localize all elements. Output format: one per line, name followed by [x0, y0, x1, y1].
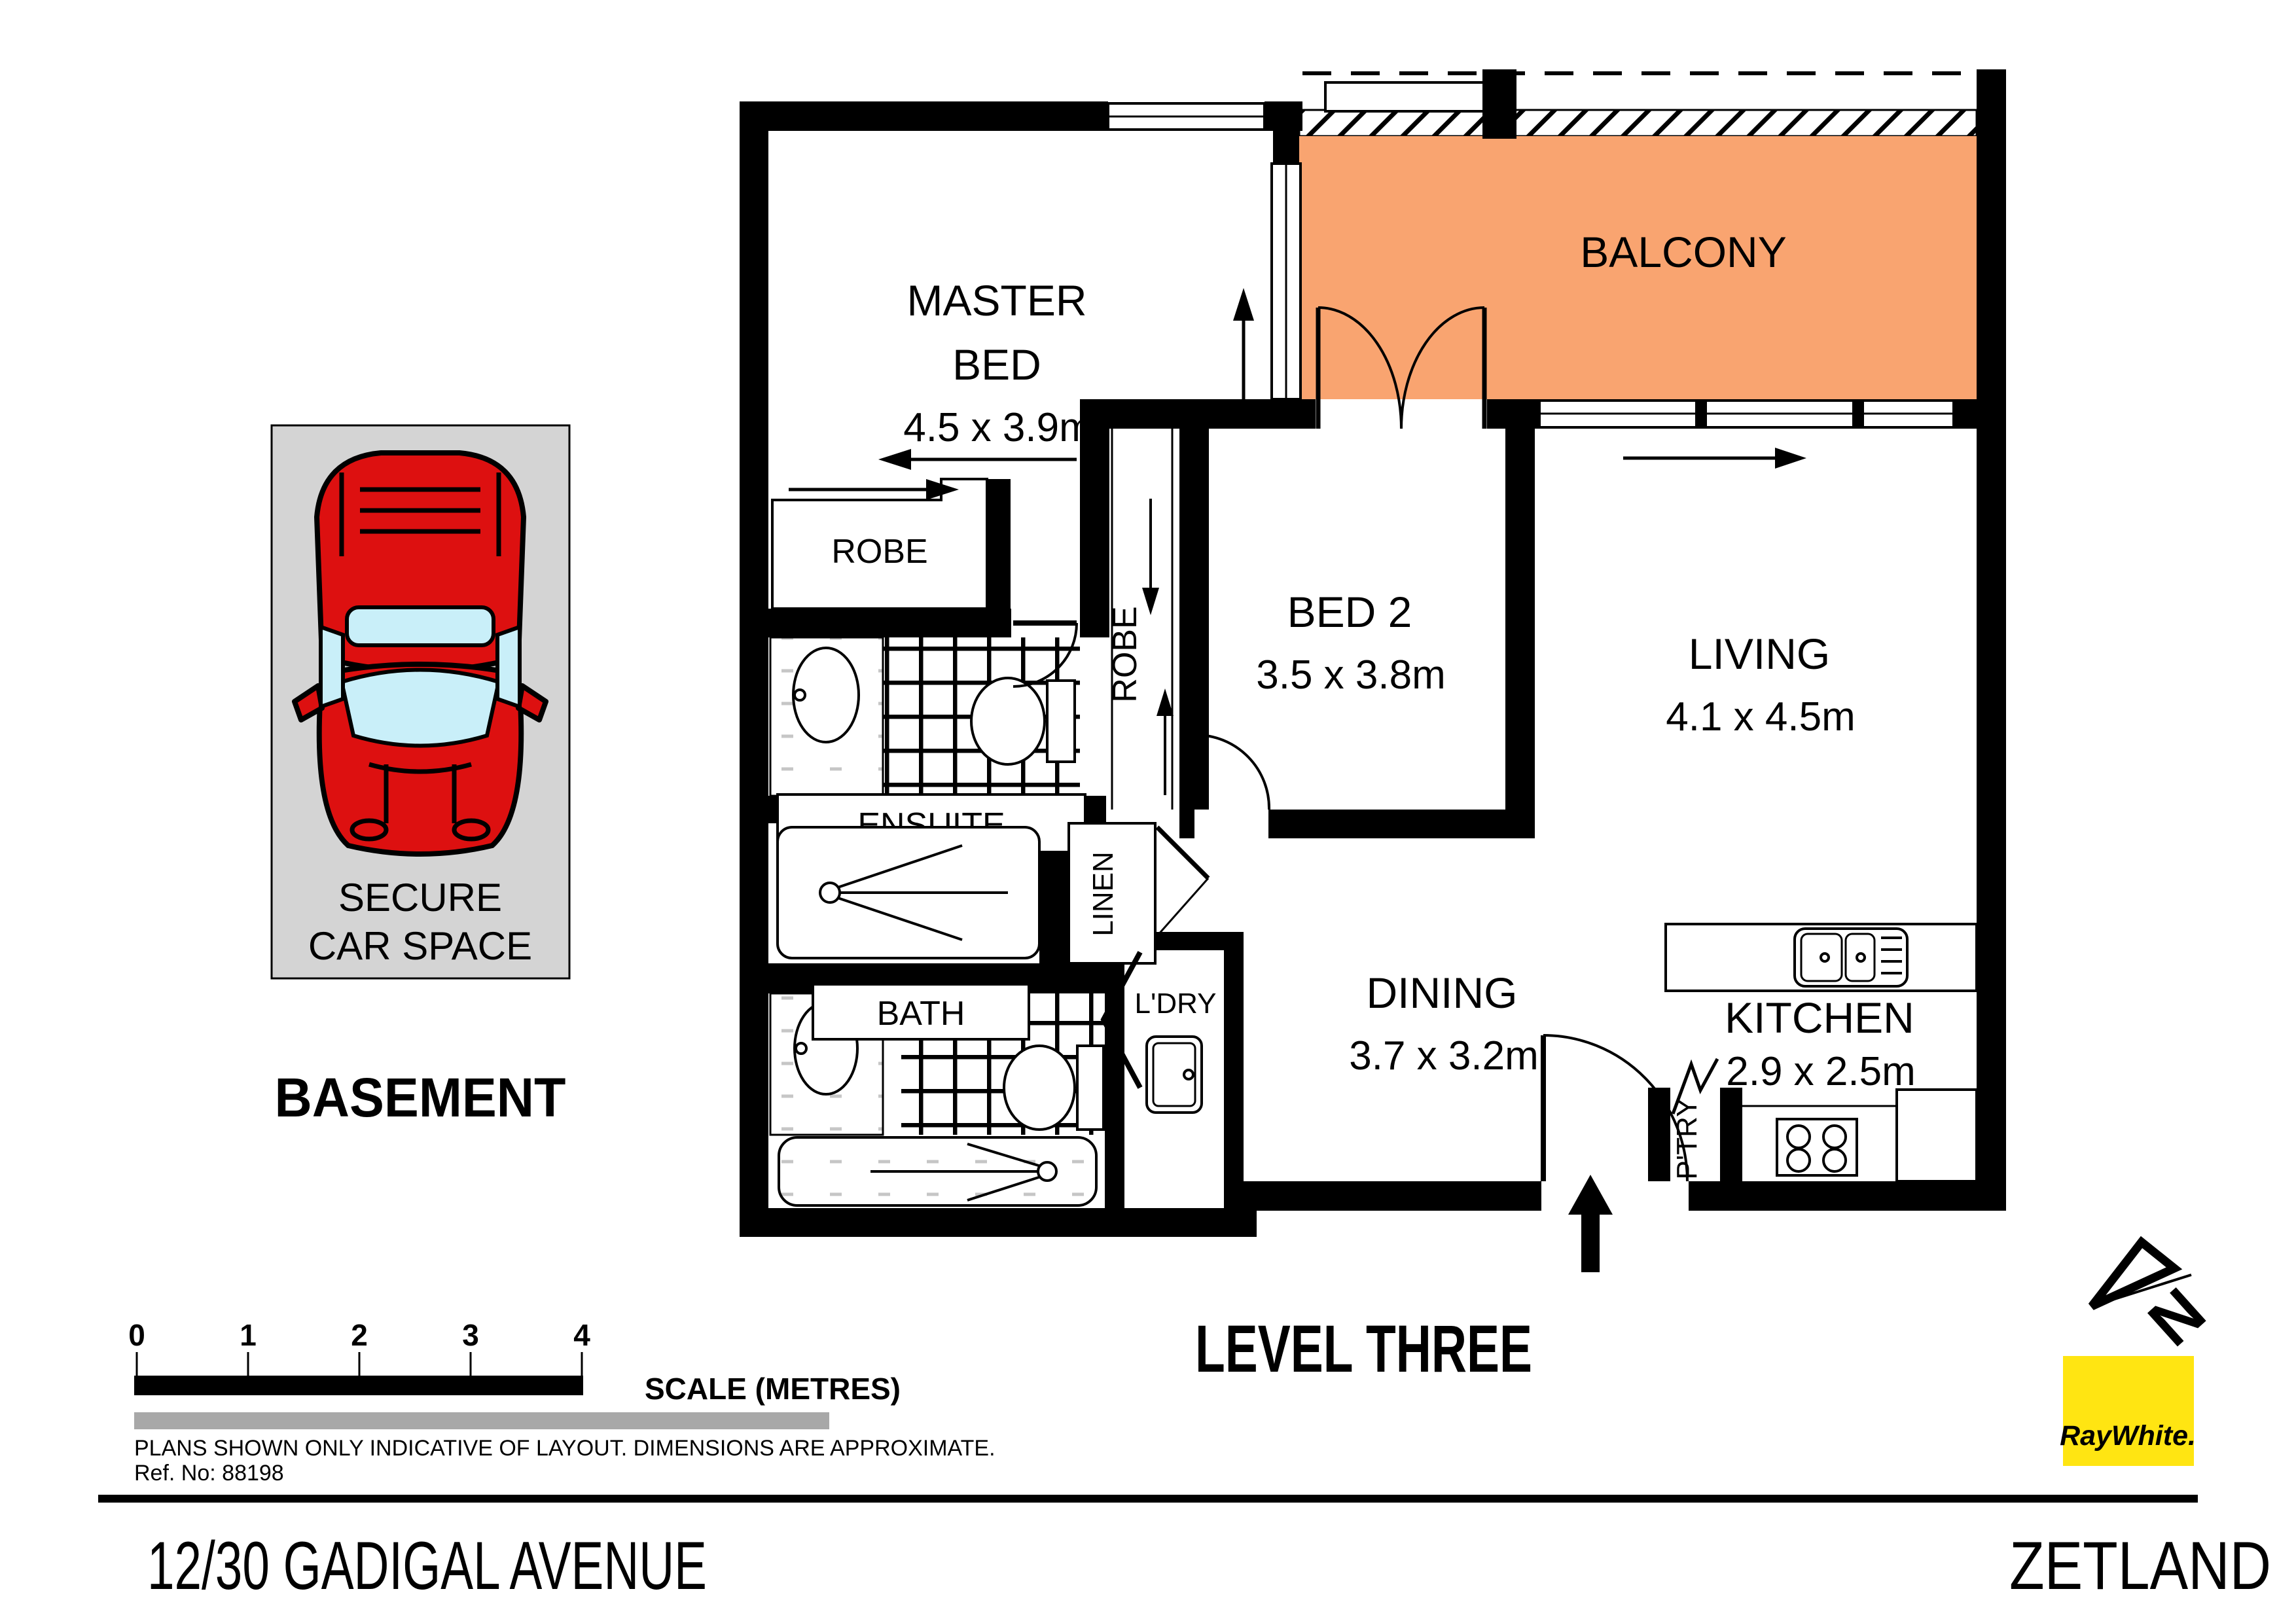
bath-label: BATH: [877, 995, 965, 1033]
laundry-east-wall: [1224, 932, 1244, 1211]
bed2-living-wall: [1505, 429, 1535, 838]
balcony-pillar: [1482, 69, 1516, 139]
carspace-label-2: CAR SPACE: [308, 924, 532, 968]
disclaimer-text: PLANS SHOWN ONLY INDICATIVE OF LAYOUT. D…: [134, 1436, 996, 1461]
master-dims: 4.5 x 3.9m: [903, 405, 1092, 450]
outer-wall-bottom-right: [1689, 1181, 2006, 1211]
living-dims: 4.1 x 4.5m: [1666, 694, 1855, 740]
car-window-left: [321, 627, 343, 707]
car-window-right: [497, 627, 520, 707]
bed2-south-wall-b: [1268, 810, 1535, 838]
bed2-dims: 3.5 x 3.8m: [1256, 652, 1445, 698]
balcony-sill-end: [1954, 399, 1977, 429]
pantry-wall-left: [1648, 1088, 1670, 1181]
ensuite-north-wall: [740, 609, 1011, 637]
master-balcony-divider: [1273, 101, 1299, 164]
laundry-label: L'DRY: [1135, 988, 1217, 1020]
kitchen-dims: 2.9 x 2.5m: [1726, 1049, 1915, 1094]
master-robe-label: ROBE: [831, 533, 927, 571]
bed2-south-wall-a: [1179, 810, 1194, 838]
bath-toilet: [1004, 1046, 1103, 1130]
balustrade-hatch: [1299, 110, 1977, 136]
car-illustration: [295, 453, 546, 854]
scale-label: SCALE (METRES): [645, 1372, 901, 1406]
address-text: 12/30 GADIGAL AVENUE: [147, 1528, 707, 1604]
scale-tick-0: 0: [128, 1318, 145, 1352]
scale-tick-1: 1: [240, 1318, 257, 1352]
bathroom: BATH: [770, 984, 1105, 1205]
carspace-label-1: SECURE: [338, 876, 502, 919]
outer-wall-bottom-left: [740, 1208, 1257, 1237]
floorplan-page: BALCONY: [0, 0, 2296, 1623]
master-top-window: [1108, 103, 1265, 130]
scale-tick-2: 2: [351, 1318, 368, 1352]
suburb-text: ZETLAND: [2009, 1528, 2271, 1604]
living-label: LIVING: [1689, 630, 1830, 678]
kitchen-sink: [1795, 929, 1907, 986]
bed2-robe-label: ROBE: [1106, 606, 1144, 702]
footer-rule: [98, 1495, 2198, 1503]
bed2-label: BED 2: [1287, 588, 1412, 636]
outer-wall-left: [740, 101, 768, 1237]
outer-wall-top-left: [740, 101, 1108, 131]
ensuite-toilet: [971, 678, 1075, 764]
shower: [778, 827, 1039, 958]
kitchen-label: KITCHEN: [1725, 993, 1914, 1042]
pantry-wall-right: [1720, 1088, 1742, 1181]
outer-wall-right: [1977, 69, 2006, 1211]
level-title: LEVEL THREE: [1195, 1311, 1532, 1386]
balcony-area: BALCONY: [1299, 69, 2004, 429]
master-label-1: MASTER: [906, 276, 1086, 325]
kitchen-fridge: [1897, 1090, 1977, 1181]
living-balcony-windows: [1539, 399, 1954, 429]
bed2-top-wall: [1080, 399, 1316, 429]
balcony-sill-pillar: [1487, 399, 1539, 429]
master-bed2-divider: [1080, 429, 1109, 637]
agency-logo: RayWhite.: [2060, 1356, 2196, 1466]
basement-label: BASEMENT: [275, 1067, 566, 1128]
balcony-planter: [1325, 82, 1486, 111]
scale-black-bar: [134, 1376, 583, 1395]
scale-gray-bar: [134, 1412, 829, 1429]
scale-tick-4: 4: [573, 1318, 590, 1352]
dining-dims: 3.7 x 3.2m: [1349, 1033, 1538, 1079]
linen-label: LINEN: [1087, 851, 1119, 936]
ref-number: Ref. No: 88198: [134, 1461, 284, 1486]
car-windshield: [342, 670, 499, 746]
cooktop: [1777, 1119, 1857, 1175]
outer-wall-bottom-mid: [1244, 1181, 1541, 1211]
car-rear-window: [347, 607, 493, 645]
master-east-window: [1272, 164, 1300, 399]
master-label-2: BED: [952, 340, 1041, 389]
washing-machine: [1147, 1037, 1202, 1113]
scale-tick-3: 3: [462, 1318, 479, 1352]
agency-logo-text: RayWhite.: [2060, 1420, 2196, 1452]
balcony-label: BALCONY: [1580, 228, 1786, 276]
ensuite-sink: [793, 648, 859, 742]
dining-label: DINING: [1367, 969, 1518, 1017]
robe-side-wall: [987, 479, 1011, 609]
bathtub: [779, 1137, 1096, 1205]
